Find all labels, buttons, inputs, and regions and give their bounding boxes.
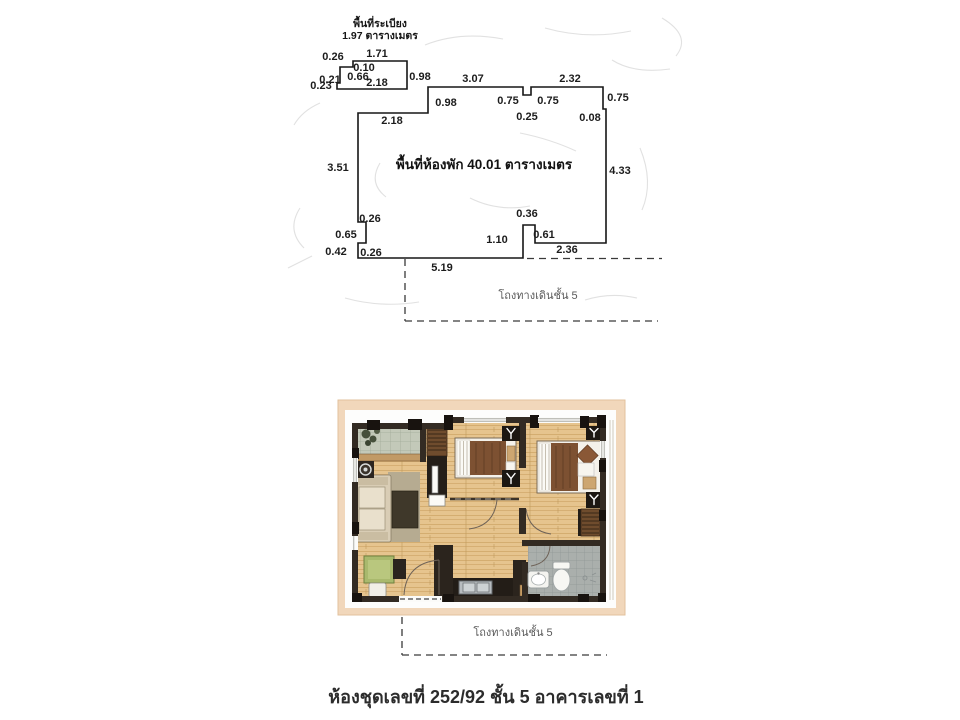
dimension-label: 4.33 [609, 165, 630, 177]
dimension-label: 5.19 [431, 262, 452, 274]
balcony-area-label-line2: 1.97 ตารางเมตร [342, 30, 418, 42]
dimension-label: 0.98 [409, 71, 430, 83]
upper-corridor-label: โถงทางเดินชั้น 5 [498, 287, 577, 302]
dimension-label: 3.51 [327, 162, 348, 174]
dimension-label: 0.98 [435, 97, 456, 109]
dimension-label: 2.18 [366, 77, 387, 89]
dimension-label: 0.26 [359, 213, 380, 225]
balcony-area-label-line1: พื้นที่ระเบียง [353, 15, 407, 30]
sofa [356, 475, 391, 542]
dimension-label: 1.10 [486, 234, 507, 246]
balcony-area [358, 428, 422, 461]
cabinet [393, 559, 406, 579]
washing-machine [357, 461, 374, 478]
bathroom [522, 540, 606, 596]
dimension-label: 0.25 [516, 111, 537, 123]
dimension-label: 2.32 [559, 73, 580, 85]
room-area-label: พื้นที่ห้องพัก 40.01 ตารางเมตร [396, 154, 573, 172]
toilet [553, 562, 570, 591]
ac-unit [586, 426, 602, 440]
document-page: พื้นที่ระเบียง 1.97 ตารางเมตร พื้นที่ห้อ… [0, 0, 960, 720]
unit-caption: ห้องชุดเลขที่ 252/92 ชั้น 5 อาคารเลขที่ … [328, 683, 643, 709]
dimension-label: 0.26 [322, 51, 343, 63]
dimension-label: 0.65 [335, 229, 356, 241]
coffee-table [392, 491, 418, 528]
unit-outline [358, 87, 606, 258]
dimension-label: 0.75 [497, 95, 518, 107]
lower-corridor-label: โถงทางเดินชั้น 5 [473, 624, 552, 639]
dimension-label: 3.07 [462, 73, 483, 85]
lower-color-plan: โถงทางเดินชั้น 5 [338, 400, 625, 655]
dimension-label: 0.75 [537, 95, 558, 107]
kitchen-sink [459, 581, 492, 594]
dimension-label: 0.26 [360, 247, 381, 259]
dimension-label: 2.36 [556, 244, 577, 256]
dimension-label: 0.42 [325, 246, 346, 258]
ac-unit [502, 426, 520, 441]
ac-unit [586, 492, 602, 508]
floorplan-canvas: พื้นที่ระเบียง 1.97 ตารางเมตร พื้นที่ห้อ… [0, 0, 960, 720]
dimension-label: 0.75 [607, 92, 628, 104]
dimension-label: 0.61 [533, 229, 554, 241]
dimension-label: 0.08 [579, 112, 600, 124]
dimension-label: 0.36 [516, 208, 537, 220]
upper-line-plan: พื้นที่ระเบียง 1.97 ตารางเมตร พื้นที่ห้อ… [288, 15, 682, 321]
dimension-label: 0.23 [310, 80, 331, 92]
dimension-label: 2.18 [381, 115, 402, 127]
dimension-label: 1.71 [366, 48, 387, 60]
ac-unit [502, 470, 520, 487]
bathroom-sink [528, 571, 549, 588]
bed-double [537, 441, 601, 493]
chair [369, 583, 386, 597]
